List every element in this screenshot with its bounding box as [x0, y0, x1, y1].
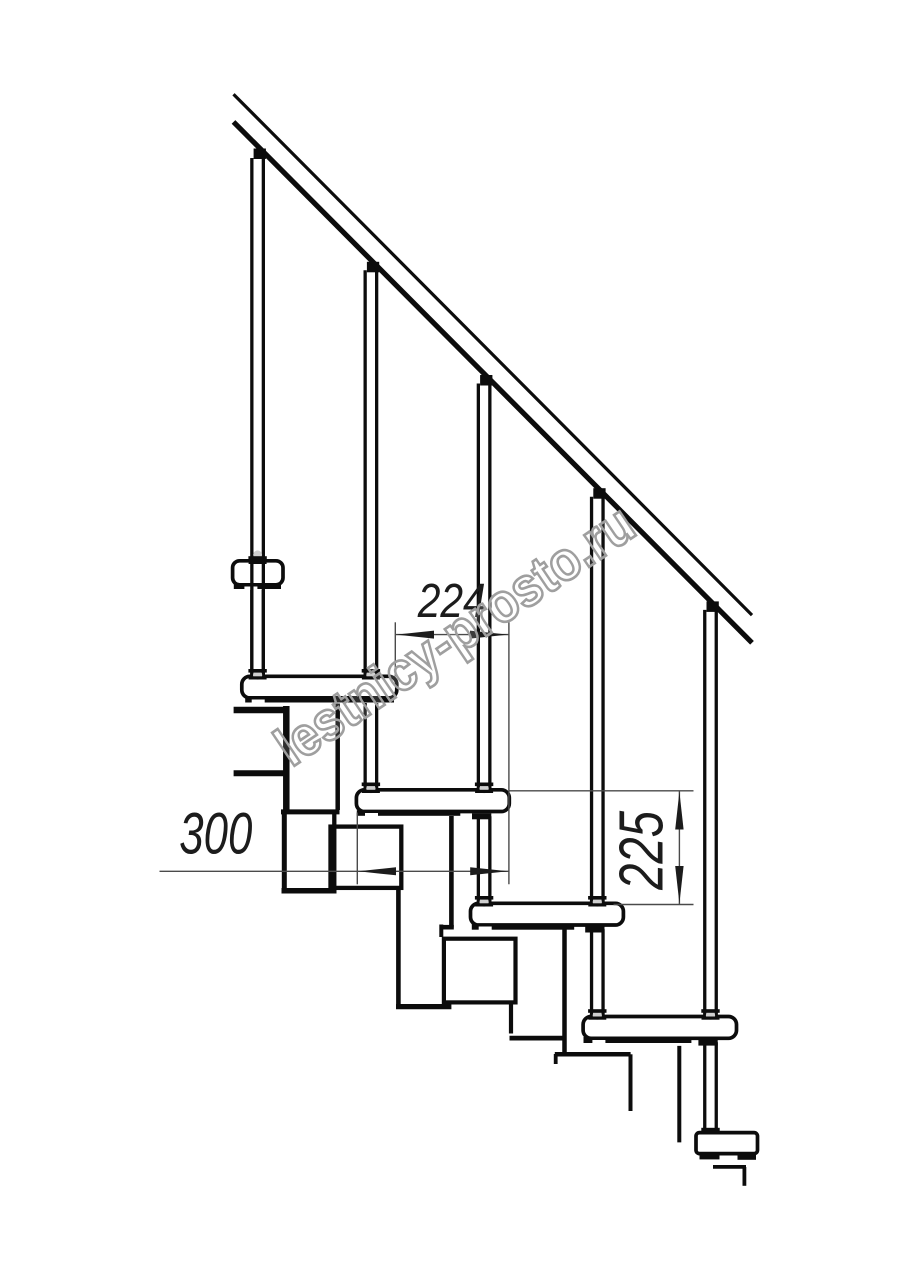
svg-text:300: 300	[179, 802, 252, 867]
svg-text:225: 225	[607, 811, 676, 891]
